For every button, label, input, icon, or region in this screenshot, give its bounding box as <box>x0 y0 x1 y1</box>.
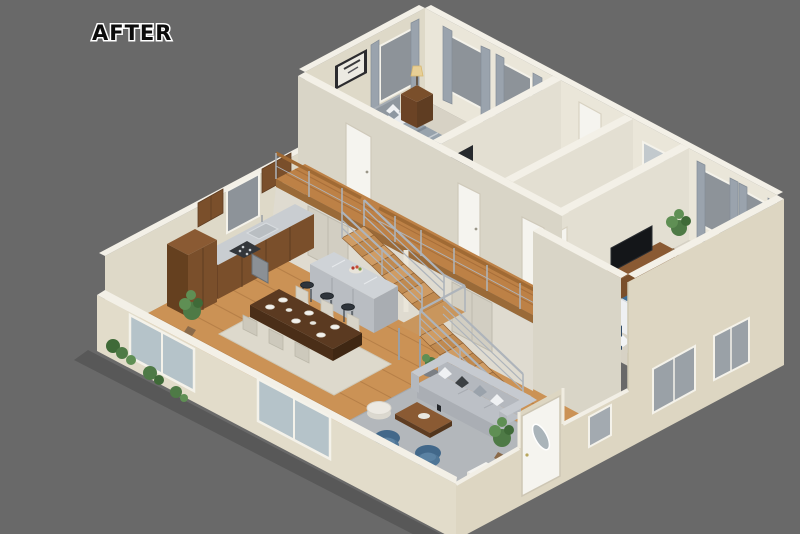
after-label: AFTER <box>92 21 172 45</box>
tray <box>418 413 430 419</box>
door-knob <box>525 453 528 456</box>
screenshot-stage: AFTER <box>0 0 800 534</box>
floor-plan-render: AFTER <box>0 0 800 534</box>
ottoman <box>367 402 391 420</box>
nightstand <box>401 85 433 128</box>
